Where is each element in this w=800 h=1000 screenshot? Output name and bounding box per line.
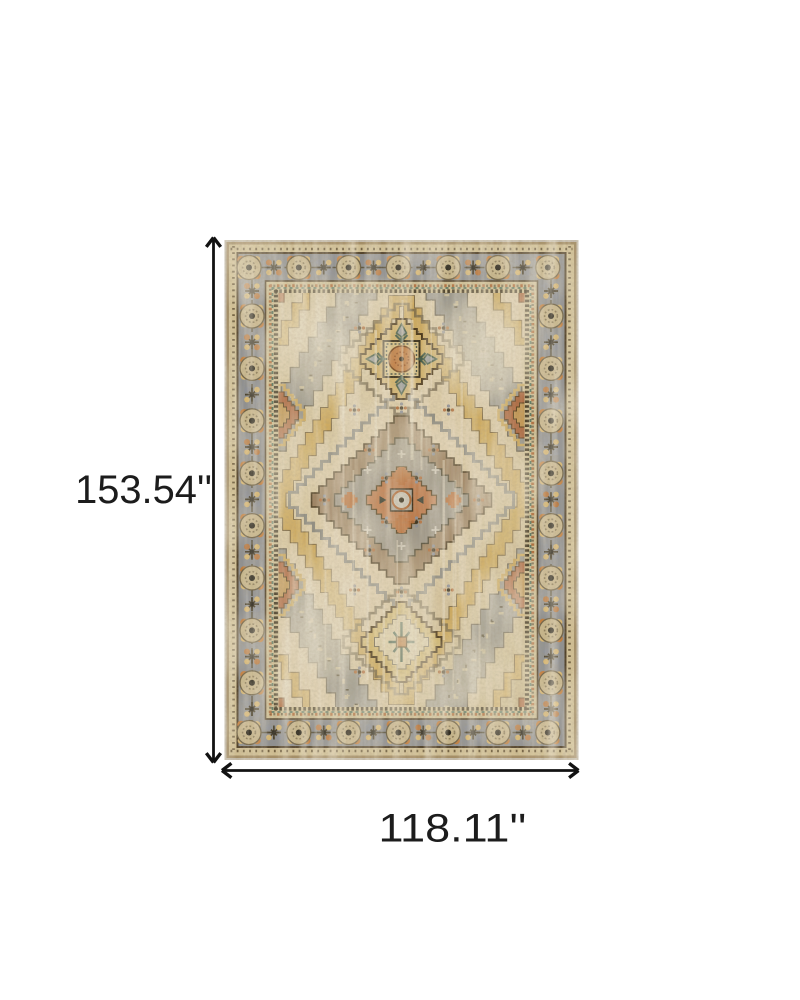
svg-text:153.54'': 153.54'' xyxy=(75,468,212,512)
svg-text:118.11'': 118.11'' xyxy=(379,806,527,850)
